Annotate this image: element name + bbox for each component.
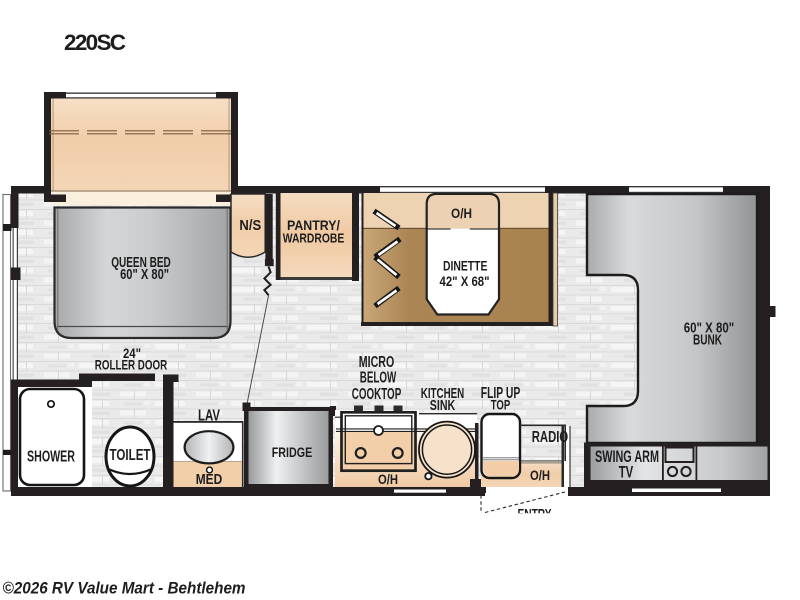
svg-text:TOILET: TOILET	[110, 447, 151, 464]
svg-text:60" X 80": 60" X 80"	[120, 267, 169, 283]
svg-text:WARDROBE: WARDROBE	[283, 231, 345, 246]
svg-text:FRIDGE: FRIDGE	[272, 445, 313, 460]
svg-text:©2026 RV Value Mart - Behtlehe: ©2026 RV Value Mart - Behtlehem	[3, 580, 246, 598]
svg-text:MICRO: MICRO	[359, 354, 395, 371]
svg-text:ROLLER DOOR: ROLLER DOOR	[95, 358, 168, 373]
svg-text:O/H: O/H	[451, 205, 472, 221]
svg-text:RADIO: RADIO	[532, 429, 569, 446]
svg-text:O/H: O/H	[530, 467, 550, 483]
svg-text:SHOWER: SHOWER	[27, 449, 75, 466]
svg-text:COOKTOP: COOKTOP	[352, 386, 402, 403]
svg-text:SINK: SINK	[430, 397, 456, 414]
svg-text:N/S: N/S	[239, 217, 261, 234]
svg-text:BELOW: BELOW	[360, 370, 397, 387]
svg-text:TV: TV	[619, 463, 634, 482]
svg-text:O/H: O/H	[378, 472, 398, 487]
svg-text:220SC: 220SC	[64, 30, 127, 55]
svg-text:TOP: TOP	[491, 397, 511, 413]
svg-text:BUNK: BUNK	[693, 333, 722, 349]
svg-text:42" X 68": 42" X 68"	[440, 273, 490, 289]
svg-text:LAV: LAV	[198, 408, 220, 425]
svg-text:DINETTE: DINETTE	[443, 257, 488, 273]
svg-text:MED: MED	[196, 471, 223, 488]
